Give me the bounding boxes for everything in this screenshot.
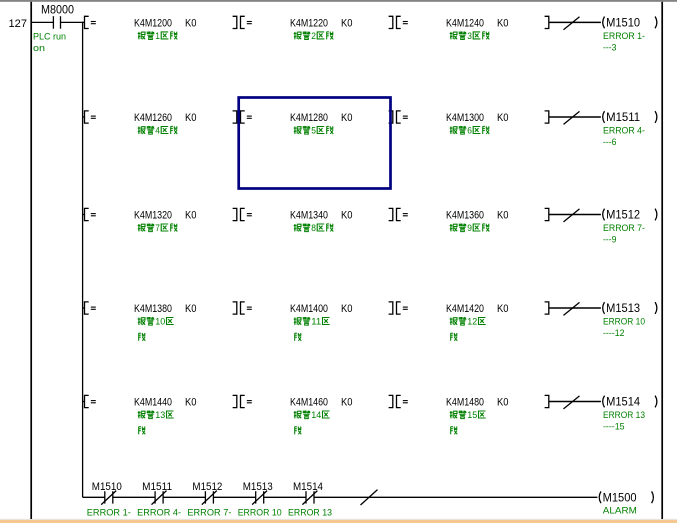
svg-text:12: 12: [467, 316, 477, 327]
svg-text:K4M1300: K4M1300: [446, 112, 484, 124]
svg-text:ERROR 13: ERROR 13: [603, 410, 645, 421]
svg-text:ERROR 4-: ERROR 4-: [603, 125, 645, 136]
svg-text:M1510: M1510: [92, 481, 122, 493]
svg-text:13: 13: [155, 410, 165, 421]
svg-text:on: on: [33, 43, 45, 54]
svg-text:K0: K0: [185, 18, 197, 30]
svg-text:K0: K0: [185, 303, 197, 315]
svg-text:7: 7: [155, 223, 160, 234]
svg-text:M1512: M1512: [606, 210, 640, 222]
svg-text:K4M1320: K4M1320: [134, 210, 172, 222]
svg-text:127: 127: [9, 18, 28, 30]
svg-text:10: 10: [155, 316, 165, 327]
svg-text:---6: ---6: [603, 137, 617, 148]
svg-text:15: 15: [467, 410, 477, 421]
svg-text:M1500: M1500: [603, 493, 637, 505]
svg-text:8: 8: [311, 223, 316, 234]
svg-text:ERROR 7-: ERROR 7-: [187, 508, 231, 519]
svg-text:---3: ---3: [603, 42, 617, 53]
svg-text:K0: K0: [497, 112, 509, 124]
svg-text:11: 11: [311, 316, 321, 327]
svg-text:2: 2: [311, 31, 316, 42]
svg-text:ERROR 1-: ERROR 1-: [603, 31, 645, 42]
svg-text:4: 4: [155, 125, 160, 136]
svg-text:14: 14: [311, 410, 321, 421]
svg-text:M8000: M8000: [41, 5, 74, 17]
svg-text:3: 3: [467, 31, 472, 42]
svg-text:K0: K0: [341, 210, 353, 222]
svg-text:K4M1200: K4M1200: [134, 18, 172, 30]
svg-text:K0: K0: [341, 18, 353, 30]
svg-text:M1514: M1514: [293, 481, 323, 493]
svg-text:K4M1220: K4M1220: [290, 18, 328, 30]
svg-text:M1513: M1513: [606, 303, 640, 315]
svg-text:K4M1400: K4M1400: [290, 303, 328, 315]
svg-text:K0: K0: [341, 303, 353, 315]
svg-text:ERROR 13: ERROR 13: [288, 508, 332, 519]
svg-text:9: 9: [467, 223, 472, 234]
svg-text:K0: K0: [185, 397, 197, 409]
svg-text:ALARM: ALARM: [603, 506, 637, 517]
svg-text:1: 1: [155, 31, 160, 42]
svg-text:5: 5: [311, 125, 316, 136]
svg-text:K4M1340: K4M1340: [290, 210, 328, 222]
svg-text:ERROR 10: ERROR 10: [238, 508, 282, 519]
svg-text:K4M1280: K4M1280: [290, 112, 328, 124]
svg-text:K4M1360: K4M1360: [446, 210, 484, 222]
svg-text:PLC run: PLC run: [33, 31, 66, 42]
svg-text:ERROR 1-: ERROR 1-: [87, 508, 131, 519]
svg-text:K4M1440: K4M1440: [134, 397, 172, 409]
svg-text:M1512: M1512: [192, 481, 222, 493]
svg-text:K4M1480: K4M1480: [446, 397, 484, 409]
svg-text:---9: ---9: [603, 234, 617, 245]
svg-text:----12: ----12: [603, 328, 625, 339]
svg-text:K0: K0: [497, 303, 509, 315]
svg-text:K0: K0: [341, 397, 353, 409]
svg-text:M1511: M1511: [142, 481, 172, 493]
svg-text:K4M1240: K4M1240: [446, 18, 484, 30]
svg-text:ERROR 4-: ERROR 4-: [137, 508, 181, 519]
svg-text:M1514: M1514: [606, 397, 641, 409]
svg-text:K4M1260: K4M1260: [134, 112, 172, 124]
svg-text:K0: K0: [497, 397, 509, 409]
svg-text:K0: K0: [185, 210, 197, 222]
svg-text:K0: K0: [185, 112, 197, 124]
svg-text:K4M1420: K4M1420: [446, 303, 484, 315]
svg-text:K4M1380: K4M1380: [134, 303, 172, 315]
svg-text:K0: K0: [497, 18, 509, 30]
svg-text:M1510: M1510: [606, 18, 640, 30]
svg-text:6: 6: [467, 125, 472, 136]
svg-text:M1511: M1511: [606, 112, 640, 124]
svg-text:ERROR 7-: ERROR 7-: [603, 223, 645, 234]
svg-text:M1513: M1513: [243, 481, 273, 493]
svg-text:----15: ----15: [603, 421, 625, 432]
svg-text:K4M1460: K4M1460: [290, 397, 328, 409]
svg-text:K0: K0: [341, 112, 353, 124]
svg-text:ERROR 10: ERROR 10: [603, 316, 645, 327]
svg-text:K0: K0: [497, 210, 509, 222]
